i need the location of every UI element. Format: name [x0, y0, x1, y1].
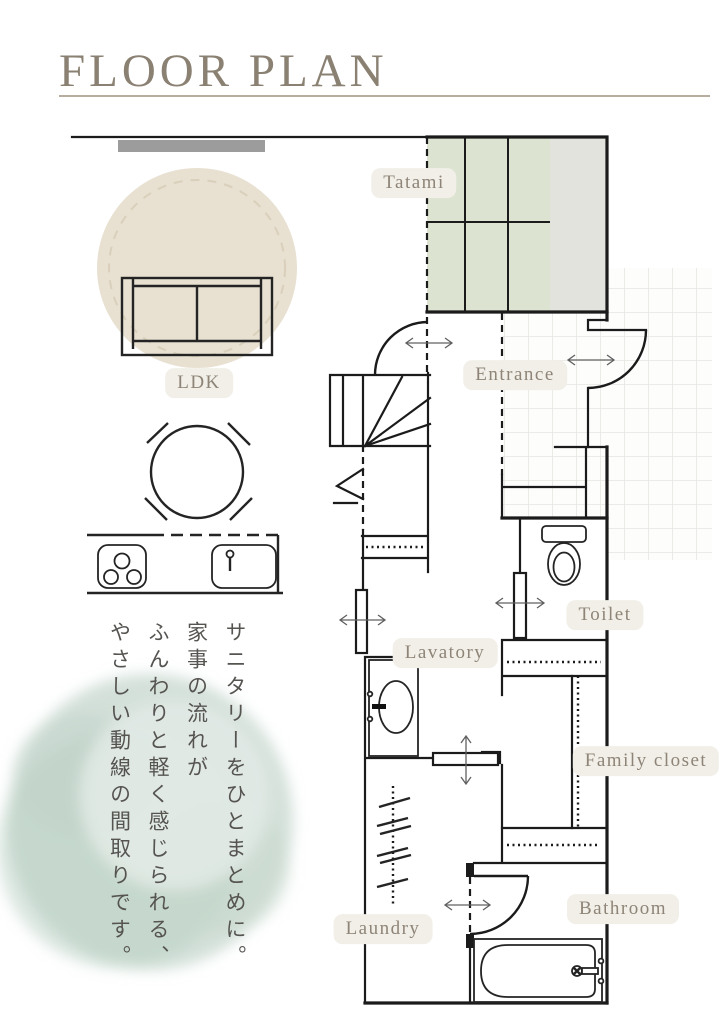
floor-plan-page: FLOOR PLAN	[0, 0, 724, 1024]
window-bar	[118, 140, 265, 152]
caption-line: 家事の流れが	[177, 621, 216, 1007]
caption-line: サニタリーをひとまとめに。	[216, 621, 255, 1007]
room-label-ldk: LDK	[165, 368, 233, 398]
room-label-family-closet: Family closet	[573, 746, 719, 776]
room-label-entrance: Entrance	[463, 360, 567, 390]
caption-line: やさしい動線の間取りです。	[100, 621, 139, 1007]
room-label-bathroom: Bathroom	[567, 894, 679, 924]
washbasin-fixture	[368, 660, 418, 756]
kitchen-counter-icon	[87, 535, 283, 593]
room-label-lavatory: Lavatory	[393, 638, 498, 668]
bathtub-fixture	[474, 939, 603, 1002]
caption-line: ふんわりと軽く感じられる、	[139, 621, 178, 1007]
room-label-tatami: Tatami	[371, 168, 456, 198]
toilet-fixture	[542, 526, 586, 585]
tatami-room	[427, 137, 607, 312]
room-label-laundry: Laundry	[334, 914, 433, 944]
stair-direction-arrow	[334, 469, 363, 503]
room-label-toilet: Toilet	[566, 600, 643, 630]
vertical-caption: サニタリーをひとまとめに。 家事の流れが ふんわりと軽く感じられる、 やさしい動…	[100, 621, 254, 1007]
dining-table-icon	[145, 423, 252, 520]
